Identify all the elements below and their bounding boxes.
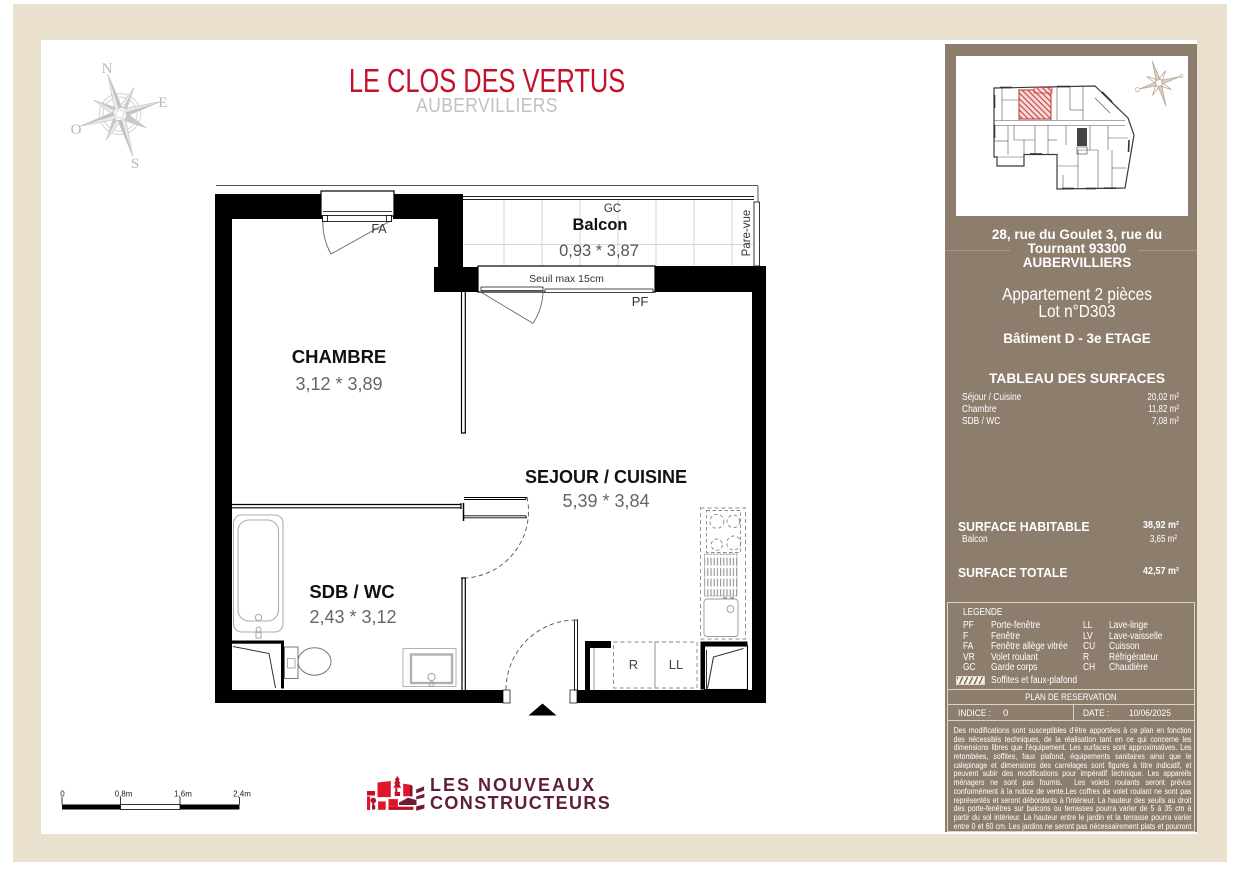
svg-text:LES NOUVEAUX: LES NOUVEAUX [430, 775, 596, 795]
svg-text:GC: GC [604, 203, 621, 215]
svg-text:CONSTRUCTEURS: CONSTRUCTEURS [430, 793, 611, 813]
svg-text:1,6m: 1,6m [174, 790, 192, 799]
svg-text:0,93 * 3,87: 0,93 * 3,87 [559, 242, 639, 260]
svg-text:LL: LL [669, 657, 683, 672]
svg-text:5,39 * 3,84: 5,39 * 3,84 [562, 491, 649, 511]
svg-text:SDB / WC: SDB / WC [309, 581, 394, 602]
svg-text:3,12 * 3,89: 3,12 * 3,89 [295, 374, 382, 394]
svg-text:SEJOUR / CUISINE: SEJOUR / CUISINE [525, 467, 687, 487]
svg-text:Pare-vue: Pare-vue [741, 210, 753, 257]
svg-text:PF: PF [632, 294, 649, 309]
svg-text:R: R [629, 657, 638, 672]
svg-text:2,4m: 2,4m [233, 790, 251, 799]
svg-text:FA: FA [371, 222, 387, 236]
svg-text:2,43 * 3,12: 2,43 * 3,12 [309, 607, 396, 627]
svg-text:CHAMBRE: CHAMBRE [292, 346, 387, 367]
svg-text:Seuil max 15cm: Seuil max 15cm [529, 273, 604, 285]
svg-text:S: S [131, 156, 139, 172]
svg-text:0: 0 [60, 790, 65, 799]
svg-text:Balcon: Balcon [572, 216, 627, 234]
svg-text:0,8m: 0,8m [115, 790, 133, 799]
svg-text:E: E [158, 95, 167, 111]
svg-text:N: N [102, 61, 113, 77]
svg-text:O: O [71, 122, 82, 138]
